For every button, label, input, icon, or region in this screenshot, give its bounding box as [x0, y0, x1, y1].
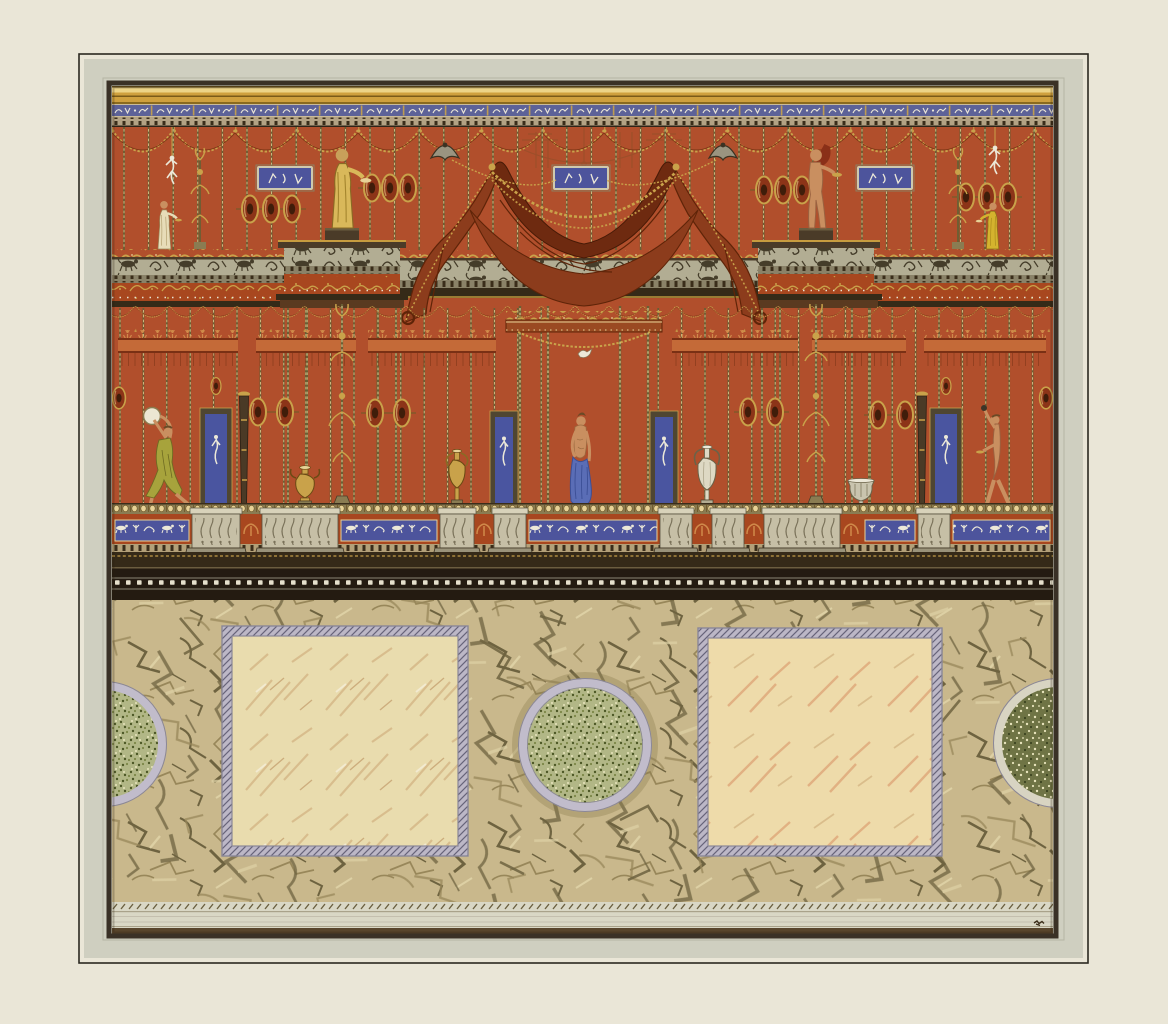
- cornice-cresting: [672, 330, 798, 338]
- medallion-boss: [214, 383, 218, 390]
- pedestal-cap: [492, 508, 528, 514]
- pedestal-relief: [715, 518, 741, 545]
- medallion-boss: [255, 407, 261, 418]
- blue-wall-panel: [650, 411, 678, 509]
- entablature-right-section: [874, 249, 1053, 307]
- cornice-fascia: [924, 338, 1046, 353]
- base-rail: [112, 503, 1053, 514]
- cornice-fascia: [118, 338, 238, 353]
- cornice-cresting: [924, 330, 1046, 338]
- medallion-boss: [247, 204, 253, 215]
- panel-figurine-head: [662, 437, 666, 441]
- oval-medallion: [113, 387, 126, 409]
- blue-plaque: [856, 165, 914, 191]
- oval-medallion: [367, 400, 383, 427]
- medallion-boss: [387, 183, 393, 194]
- oval-medallion: [767, 399, 783, 426]
- medallion-boss: [399, 408, 405, 419]
- oval-medallion: [400, 175, 416, 202]
- oval-medallion: [870, 402, 886, 429]
- medallion-boss: [1005, 192, 1011, 203]
- medallion-boss: [289, 204, 295, 215]
- oval-medallion: [211, 378, 221, 395]
- painting: [42, 86, 1123, 934]
- artwork-scan: Design for a neoclassical wall elevation…: [0, 0, 1168, 1024]
- cornice-fascia: [672, 338, 798, 353]
- blue-wall-panel: [200, 408, 232, 512]
- medallion-boss: [369, 183, 375, 194]
- cornice-cresting: [812, 330, 906, 338]
- medallion-boss: [780, 185, 786, 196]
- green-roundel-center: [515, 675, 655, 815]
- pavilion-right: [750, 228, 882, 308]
- oval-medallion: [382, 175, 398, 202]
- pedestal-relief: [767, 518, 837, 545]
- oval-medallion: [1040, 387, 1053, 409]
- medallion-boss: [282, 407, 288, 418]
- oval-medallion: [242, 196, 258, 223]
- oval-medallion: [284, 196, 300, 223]
- top-gilt-band: [112, 86, 1053, 104]
- medallion-boss: [745, 407, 751, 418]
- cornice-cresting: [368, 330, 496, 338]
- pedestal-cap: [916, 508, 952, 514]
- blue-wall-panel: [490, 411, 518, 509]
- entablature-left-section: [112, 249, 284, 307]
- panel-figurine-head: [944, 435, 948, 439]
- medallion-boss: [1043, 394, 1048, 403]
- base-course: [112, 902, 1053, 934]
- blue-plaque: [552, 165, 610, 191]
- medallion-boss: [799, 185, 805, 196]
- marble-panel-right: [698, 628, 942, 856]
- pedestal-relief: [265, 518, 335, 545]
- top-dentil-band: [112, 117, 1053, 128]
- oval-medallion: [1000, 184, 1016, 211]
- oval-medallion: [756, 177, 772, 204]
- panel-figurine-head: [502, 437, 506, 441]
- medallion-boss: [772, 407, 778, 418]
- oval-medallion: [250, 399, 266, 426]
- pedestal-relief: [663, 518, 689, 545]
- marble-panel-left: [222, 626, 468, 856]
- pedestal-relief: [921, 518, 947, 545]
- cornice-fascia: [812, 338, 906, 353]
- blue-plaque: [256, 165, 314, 191]
- pedestal-cap: [260, 508, 340, 514]
- cornice-cresting: [118, 330, 238, 338]
- medallion-boss: [984, 192, 990, 203]
- pedestal-cap: [438, 508, 476, 514]
- oval-medallion: [941, 378, 951, 395]
- dark-step: [112, 552, 1053, 567]
- pedestal-relief: [195, 518, 237, 545]
- pedestal-cap: [762, 508, 842, 514]
- medallion-boss: [405, 183, 411, 194]
- top-blue-frieze: [112, 104, 1053, 117]
- oval-medallion: [277, 399, 293, 426]
- cornice-fascia: [368, 338, 496, 353]
- medallion-boss: [268, 204, 274, 215]
- medallion-boss: [372, 408, 378, 419]
- oval-medallion: [740, 399, 756, 426]
- pedestal-cap: [658, 508, 694, 514]
- medallion-boss: [761, 185, 767, 196]
- artwork-figure: Design for a neoclassical wall elevation…: [0, 0, 1168, 1024]
- oval-medallion: [958, 184, 974, 211]
- oval-medallion: [775, 177, 791, 204]
- blue-wall-panel: [930, 408, 962, 512]
- oval-medallion: [897, 402, 913, 429]
- medallion-boss: [116, 394, 121, 403]
- oval-medallion: [394, 400, 410, 427]
- medallion-boss: [875, 410, 881, 421]
- pedestal-relief: [443, 518, 471, 545]
- medallion-boss: [902, 410, 908, 421]
- pavilion-left: [276, 228, 408, 308]
- panel-figurine-head: [214, 435, 218, 439]
- oval-medallion: [794, 177, 810, 204]
- marbled-dado: [42, 600, 1123, 902]
- oval-medallion: [263, 196, 279, 223]
- pedestal-cap: [710, 508, 746, 514]
- wall-design-painting: [0, 0, 1168, 1024]
- black-string-course: [112, 567, 1053, 600]
- pedestal-cap: [190, 508, 242, 514]
- medallion-boss: [944, 383, 948, 390]
- pedestal-relief: [497, 518, 523, 545]
